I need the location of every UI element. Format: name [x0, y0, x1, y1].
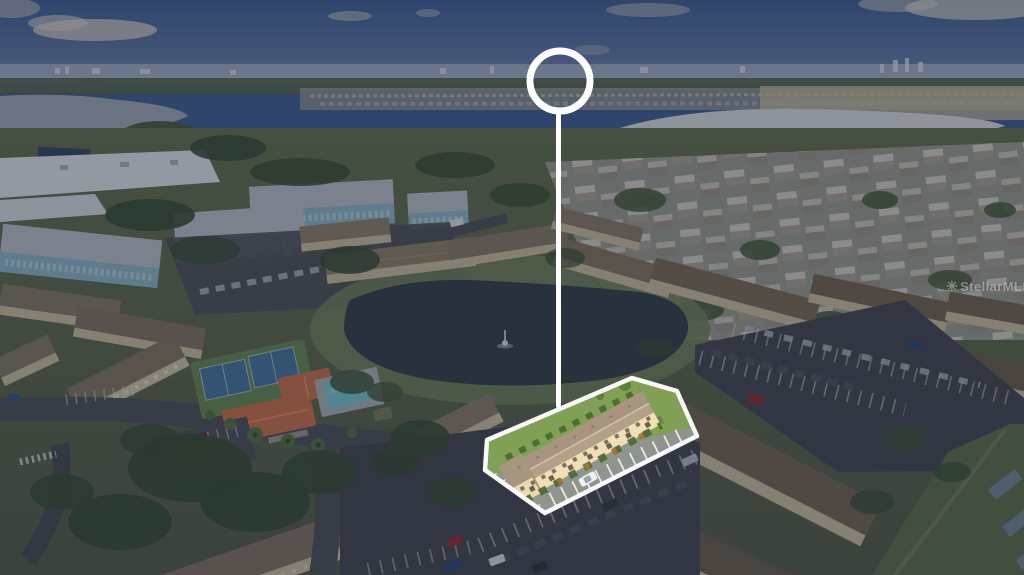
- mls-watermark: ✳ StellarMLS: [946, 278, 1024, 295]
- aerial-property-photo: ✳ StellarMLS: [0, 0, 1024, 575]
- aerial-scene: [0, 0, 1024, 575]
- mls-watermark-text: StellarMLS: [960, 279, 1024, 294]
- stellar-mls-logo-icon: ✳: [946, 278, 958, 295]
